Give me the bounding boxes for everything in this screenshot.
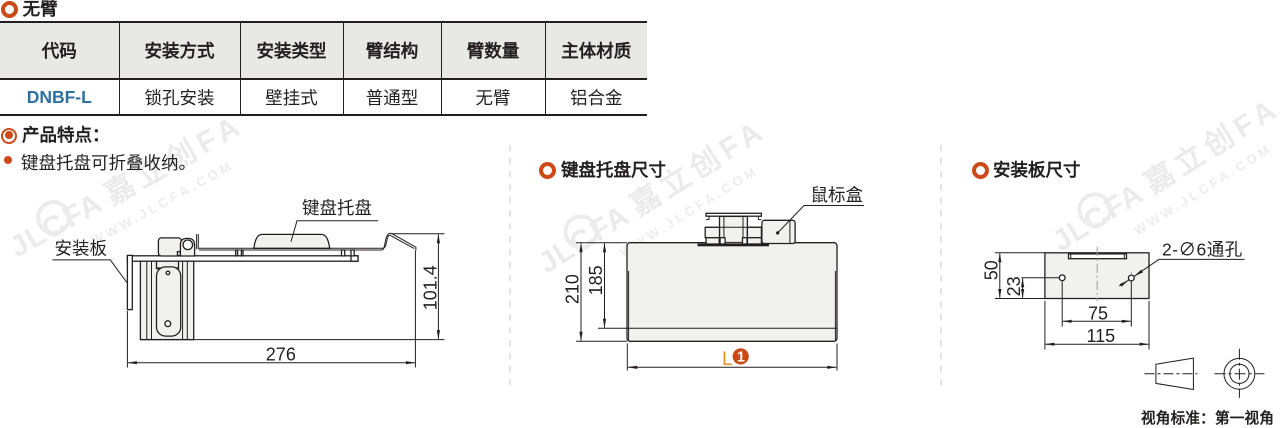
- svg-text:安装板: 安装板: [55, 239, 108, 259]
- svg-text:210: 210: [563, 274, 583, 304]
- svg-text:键盘托盘: 键盘托盘: [302, 198, 372, 218]
- svg-text:23: 23: [1004, 276, 1024, 296]
- svg-text:L: L: [722, 349, 733, 370]
- svg-text:115: 115: [1087, 326, 1116, 346]
- svg-text:鼠标盒: 鼠标盒: [811, 185, 864, 205]
- svg-text:185: 185: [586, 265, 606, 295]
- svg-text:276: 276: [266, 344, 296, 364]
- svg-text:101.4: 101.4: [421, 265, 441, 310]
- svg-text:75: 75: [1088, 303, 1108, 323]
- svg-text:50: 50: [982, 260, 1002, 280]
- svg-text:2-∅6通孔: 2-∅6通孔: [1162, 240, 1243, 260]
- svg-text:1: 1: [737, 350, 745, 366]
